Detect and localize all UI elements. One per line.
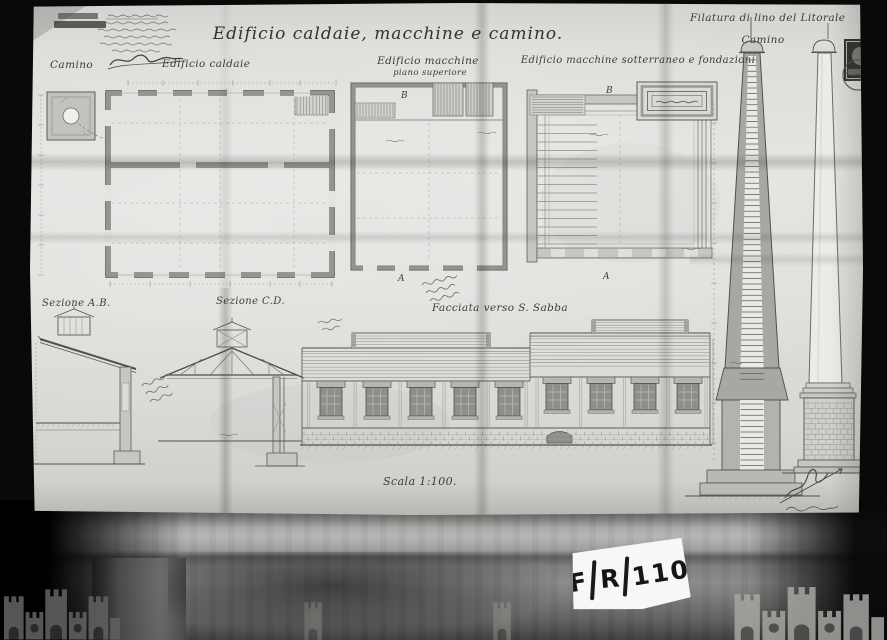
archive-code-part-r: R [599,563,620,593]
label-project-heading: Filatura di lino del Litorale [689,12,845,24]
archive-code-part-num: 110 [631,554,693,591]
label-facciata: Facciata verso S. Sabba [431,302,568,314]
marker-a-machine-plan: A [397,274,405,284]
castle-watermark-left [2,588,120,640]
archival-photograph: Edificio caldaie, macchine e camino. Fil… [0,0,887,640]
archive-code: F R 110 [567,549,692,603]
label-sezione-ab: Sezione A.B. [42,298,111,309]
label-edificio-macchine-sotterraneo: Edificio macchine sotterraneo e fondazio… [520,55,755,66]
slash-stroke [623,556,629,596]
slash-stroke [590,560,596,600]
castle-watermark-small-1 [300,598,326,640]
section-ab-drawing [32,305,145,464]
chimney-plan [47,92,108,140]
drawing-title: Edificio caldaie, macchine e camino. [212,24,564,44]
marker-b-machine-plan: B [400,91,408,101]
marker-b-foundations-plan: B [605,86,613,96]
castle-watermark-right [732,586,884,640]
marker-a-foundations-plan: A [602,272,610,282]
facade-windows [317,377,702,419]
castle-watermark-small-2 [489,598,515,640]
label-camino-elevazione: Camino [741,34,784,46]
siding-lines [302,323,710,378]
label-edificio-macchine: Edificio macchine [376,55,479,67]
blueprint-sheet: Edificio caldaie, macchine e camino. Fil… [30,3,863,515]
label-piano-superiore: piano superiore [393,68,467,78]
label-camino-plan: Camino [50,59,93,71]
label-edificio-caldaie: Edificio caldaie [161,58,250,70]
